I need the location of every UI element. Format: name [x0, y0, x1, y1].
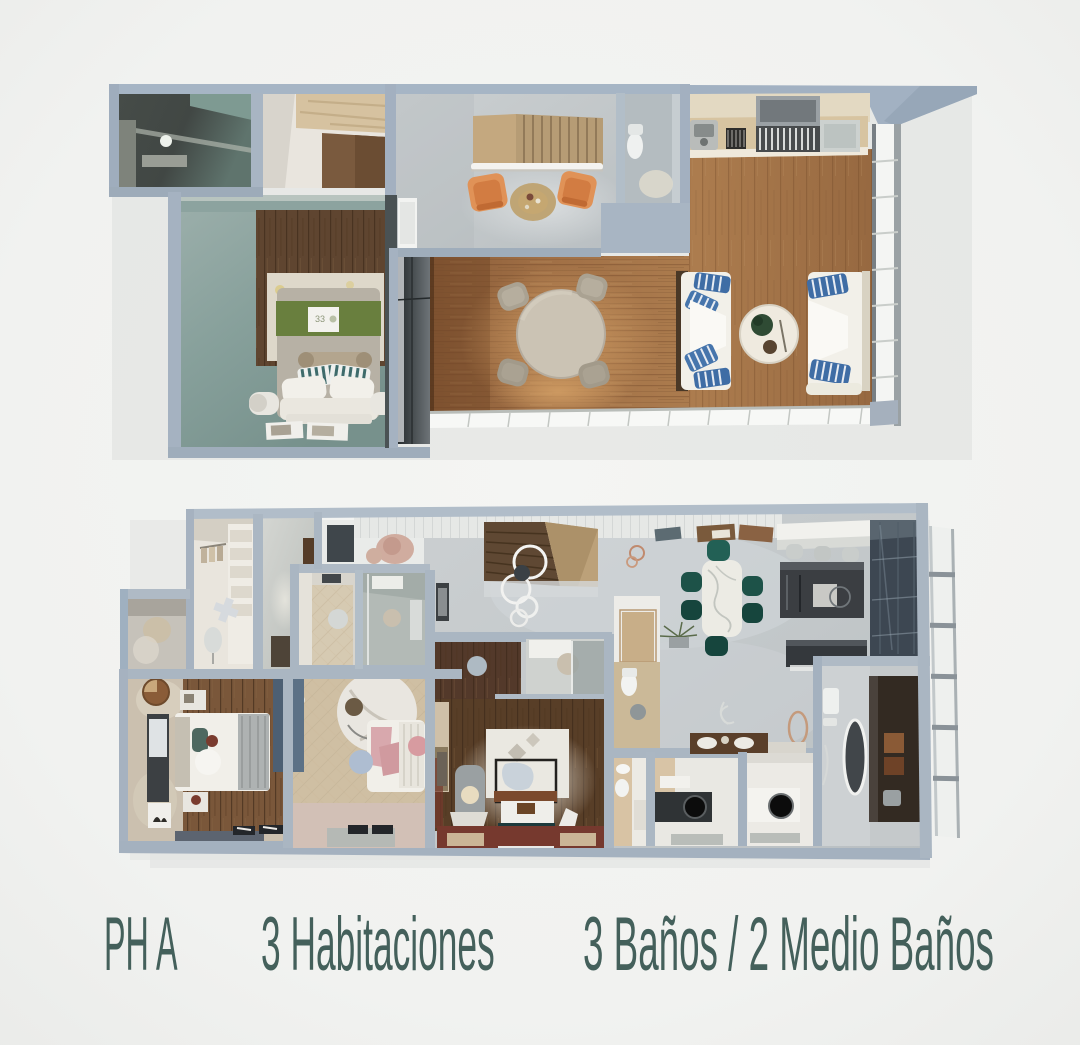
svg-text:33: 33 [315, 314, 325, 324]
svg-text:PH A: PH A [104, 902, 178, 987]
svg-text:3 Habitaciones: 3 Habitaciones [261, 901, 495, 987]
svg-text:3 Baños / 2 Medio Baños: 3 Baños / 2 Medio Baños [583, 901, 994, 986]
